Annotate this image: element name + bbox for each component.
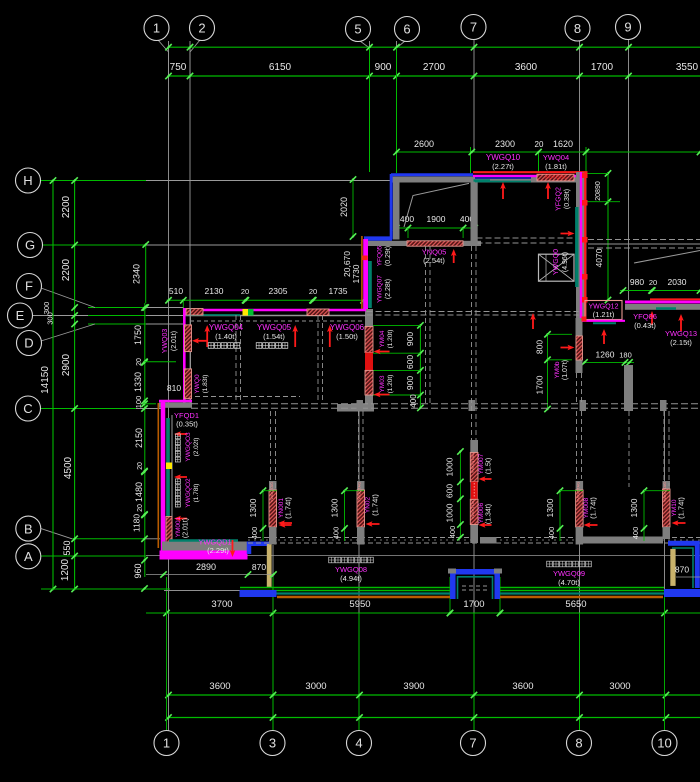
svg-text:(1.07t): (1.07t) — [562, 360, 569, 380]
svg-text:1: 1 — [163, 736, 170, 751]
svg-text:1200: 1200 — [60, 558, 71, 581]
svg-text:5950: 5950 — [349, 599, 370, 610]
svg-text:1750: 1750 — [133, 325, 143, 345]
svg-text:G: G — [25, 238, 35, 253]
svg-text:400: 400 — [448, 526, 457, 539]
svg-text:(2.28t): (2.28t) — [385, 279, 392, 299]
svg-text:(0.29t): (0.29t) — [385, 246, 392, 266]
svg-text:1480: 1480 — [134, 482, 144, 502]
svg-text:870: 870 — [252, 562, 266, 572]
svg-text:1700: 1700 — [463, 599, 484, 610]
svg-text:(2.01t): (2.01t) — [183, 518, 190, 538]
svg-text:3600: 3600 — [209, 681, 230, 692]
svg-text:(1.83t): (1.83t) — [202, 375, 209, 394]
svg-text:YM0b: YM0b — [554, 361, 561, 378]
svg-text:E: E — [16, 308, 25, 323]
svg-text:(1.20t): (1.20t) — [387, 375, 394, 394]
svg-text:2020: 2020 — [339, 197, 349, 217]
svg-text:2340: 2340 — [132, 264, 142, 284]
svg-text:400: 400 — [631, 527, 640, 540]
svg-text:2130: 2130 — [205, 286, 224, 296]
svg-text:20: 20 — [137, 462, 144, 470]
svg-text:(2.29t): (2.29t) — [207, 546, 229, 555]
svg-text:YFQ06: YFQ06 — [633, 312, 657, 321]
svg-text:4500: 4500 — [63, 456, 74, 479]
svg-text:1620: 1620 — [553, 139, 573, 149]
svg-text:(1.40t): (1.40t) — [215, 332, 237, 341]
svg-text:1330: 1330 — [133, 372, 143, 392]
svg-text:3: 3 — [269, 736, 276, 751]
svg-text:1700: 1700 — [591, 62, 614, 73]
svg-text:(0.39t): (0.39t) — [564, 189, 571, 209]
svg-text:(4.96t): (4.96t) — [562, 252, 569, 272]
svg-text:20: 20 — [309, 287, 317, 296]
svg-text:(1.5t): (1.5t) — [486, 458, 493, 474]
svg-text:YWGQ0: YWGQ0 — [553, 249, 560, 275]
svg-text:2: 2 — [198, 21, 205, 36]
svg-text:960: 960 — [133, 563, 143, 578]
svg-text:1300: 1300 — [330, 498, 340, 517]
svg-text:1700: 1700 — [535, 375, 545, 394]
svg-text:YWGQTAG: YWGQTAG — [470, 453, 475, 474]
svg-text:1735: 1735 — [329, 286, 348, 296]
svg-text:3550: 3550 — [676, 62, 699, 73]
svg-text:2600: 2600 — [414, 139, 434, 149]
svg-text:YWGQTAG: YWGQTAG — [470, 499, 475, 520]
svg-text:(1.74t): (1.74t) — [589, 497, 598, 519]
svg-text:YM001: YM001 — [175, 516, 182, 537]
svg-text:(1.21t): (1.21t) — [593, 310, 615, 319]
svg-text:4070: 4070 — [594, 248, 604, 267]
svg-text:(4.70t): (4.70t) — [558, 578, 580, 587]
svg-text:20890: 20890 — [595, 181, 602, 201]
svg-text:(2.27t): (2.27t) — [492, 162, 514, 171]
svg-text:YWGQ08: YWGQ08 — [335, 565, 367, 574]
svg-text:YWGQO2: YWGQO2 — [185, 478, 192, 508]
svg-text:(1.54t): (1.54t) — [263, 332, 285, 341]
svg-text:1: 1 — [153, 21, 160, 36]
svg-text:550: 550 — [62, 540, 72, 555]
svg-text:YWGQ04: YWGQ04 — [209, 323, 244, 332]
svg-text:400: 400 — [547, 527, 556, 540]
svg-text:980: 980 — [630, 277, 644, 287]
svg-text:(1.50t): (1.50t) — [336, 332, 358, 341]
svg-text:YWGQ10: YWGQ10 — [486, 153, 521, 162]
svg-text:2030: 2030 — [668, 277, 687, 287]
svg-text:400: 400 — [250, 527, 259, 540]
svg-text:H: H — [23, 173, 32, 188]
svg-text:YWGQ13: YWGQ13 — [665, 329, 697, 338]
svg-text:YM04: YM04 — [379, 330, 386, 347]
svg-text:YM007: YM007 — [478, 453, 485, 474]
svg-text:7: 7 — [470, 20, 477, 35]
svg-text:6150: 6150 — [269, 62, 292, 73]
svg-text:YM006: YM006 — [478, 502, 485, 523]
svg-text:YWGQTAG: YWGQTAG — [269, 482, 274, 503]
svg-text:20: 20 — [535, 140, 544, 149]
svg-text:600: 600 — [405, 355, 415, 369]
svg-text:20: 20 — [136, 358, 143, 366]
svg-text:1900: 1900 — [427, 214, 446, 224]
svg-text:1260: 1260 — [596, 350, 615, 360]
svg-text:1000: 1000 — [445, 503, 455, 522]
svg-text:(1.74t): (1.74t) — [284, 497, 293, 519]
svg-text:(1.78t): (1.78t) — [193, 484, 200, 503]
svg-text:1300: 1300 — [248, 498, 258, 517]
svg-text:YM03: YM03 — [379, 375, 386, 392]
svg-text:YFQ05: YFQ05 — [377, 245, 384, 266]
svg-text:900: 900 — [405, 376, 415, 390]
svg-text:(1.20t): (1.20t) — [387, 330, 394, 349]
svg-text:XGYQGC: XGYQGC — [545, 175, 567, 181]
svg-text:YWQ04: YWQ04 — [543, 153, 569, 162]
svg-text:(1.74t): (1.74t) — [677, 497, 686, 519]
svg-text:400: 400 — [409, 394, 418, 408]
svg-text:(2.01t): (2.01t) — [171, 331, 178, 351]
svg-text:YWGQ09: YWGQ09 — [553, 569, 585, 578]
svg-text:5: 5 — [354, 22, 361, 37]
svg-text:YFGQ2: YFGQ2 — [556, 187, 563, 211]
svg-text:3600: 3600 — [512, 681, 533, 692]
svg-text:F: F — [25, 279, 33, 294]
svg-text:YWQ03: YWQ03 — [162, 329, 169, 354]
svg-text:(2.02t): (2.02t) — [193, 438, 200, 457]
svg-text:2700: 2700 — [423, 62, 446, 73]
svg-text:(1.81t): (1.81t) — [545, 162, 567, 171]
svg-text:1180: 1180 — [132, 514, 142, 533]
svg-text:YWGQTAG: YWGQTAG — [662, 482, 667, 503]
svg-text:1730: 1730 — [351, 264, 361, 283]
svg-text:8: 8 — [575, 736, 582, 751]
svg-text:400: 400 — [332, 527, 341, 540]
svg-text:YWGQ07: YWGQ07 — [377, 275, 384, 303]
svg-text:(2.15t): (2.15t) — [670, 338, 692, 347]
svg-text:2890: 2890 — [196, 562, 216, 572]
svg-text:(1.74t): (1.74t) — [371, 494, 380, 516]
svg-text:14150: 14150 — [40, 366, 51, 394]
svg-text:810: 810 — [167, 383, 181, 393]
svg-text:800: 800 — [535, 340, 545, 354]
svg-text:20: 20 — [649, 278, 657, 287]
svg-text:180: 180 — [619, 351, 632, 360]
svg-text:2150: 2150 — [134, 428, 144, 448]
svg-text:600: 600 — [445, 484, 455, 498]
svg-text:2200: 2200 — [61, 258, 72, 281]
svg-text:10: 10 — [657, 736, 671, 751]
svg-text:(0.35t): (0.35t) — [176, 420, 198, 429]
svg-text:(1.34t): (1.34t) — [486, 504, 493, 524]
svg-text:YWGQTAG: YWGQTAG — [357, 482, 362, 503]
svg-text:YWGQ06: YWGQ06 — [330, 323, 365, 332]
svg-text:D: D — [24, 336, 33, 351]
svg-text:C: C — [23, 401, 32, 416]
svg-text:5650: 5650 — [565, 599, 586, 610]
svg-text:2305: 2305 — [269, 286, 288, 296]
svg-text:1000: 1000 — [445, 457, 455, 476]
svg-text:3000: 3000 — [609, 681, 630, 692]
svg-text:6: 6 — [403, 22, 410, 37]
svg-text:3000: 3000 — [305, 681, 326, 692]
svg-text:YWGQ05: YWGQ05 — [257, 323, 292, 332]
svg-text:8: 8 — [574, 21, 581, 36]
svg-text:(4.94t): (4.94t) — [340, 574, 362, 583]
svg-text:100: 100 — [134, 396, 143, 409]
svg-text:1300: 1300 — [629, 498, 639, 517]
svg-text:9: 9 — [624, 20, 631, 35]
svg-text:1300: 1300 — [545, 498, 555, 517]
svg-text:YWGQO3: YWGQO3 — [185, 432, 192, 462]
svg-text:20: 20 — [241, 287, 249, 296]
svg-text:900: 900 — [375, 62, 392, 73]
svg-text:2900: 2900 — [61, 353, 72, 376]
svg-text:510: 510 — [169, 286, 183, 296]
svg-text:3900: 3900 — [403, 681, 424, 692]
svg-text:YWQ0: YWQ0 — [194, 374, 201, 394]
svg-text:7: 7 — [469, 736, 476, 751]
svg-text:A: A — [24, 549, 33, 564]
svg-text:900: 900 — [405, 332, 415, 346]
svg-text:YWGQTAG: YWGQTAG — [575, 482, 580, 503]
svg-text:(2.54t): (2.54t) — [423, 256, 445, 265]
svg-text:20: 20 — [137, 504, 144, 512]
svg-text:2200: 2200 — [61, 195, 72, 218]
svg-text:870: 870 — [675, 565, 689, 575]
svg-text:750: 750 — [170, 62, 187, 73]
svg-text:3700: 3700 — [211, 599, 232, 610]
svg-text:3600: 3600 — [515, 62, 538, 73]
svg-text:(0.43t): (0.43t) — [634, 321, 656, 330]
svg-text:2300: 2300 — [495, 139, 515, 149]
svg-text:B: B — [24, 521, 33, 536]
svg-text:300: 300 — [46, 312, 55, 325]
svg-text:4: 4 — [355, 736, 362, 751]
